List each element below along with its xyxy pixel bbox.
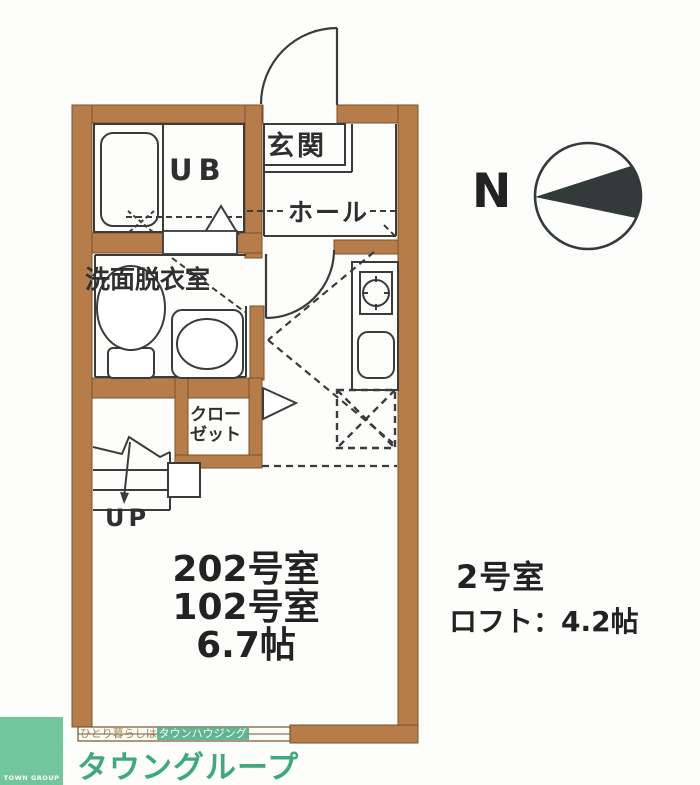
annotation-loft-size: ロフト：4.2帖 xyxy=(449,600,639,640)
tagline-plain: ひとり暮らしは xyxy=(80,727,157,740)
label-washroom: 洗面脱衣室 xyxy=(85,260,210,296)
wash-basin xyxy=(172,310,243,378)
annotation-room-number: 2号室 xyxy=(456,552,545,598)
hall-door xyxy=(266,250,334,318)
ub-door-triangle xyxy=(204,206,238,234)
label-entrance: 玄関 xyxy=(267,124,327,163)
label-closet-line2: ゼット xyxy=(190,420,241,445)
tagline-highlight: タウンハウジング xyxy=(157,727,249,740)
stove xyxy=(360,272,392,314)
wall-left xyxy=(72,105,92,727)
wall-washroom-right xyxy=(250,306,264,380)
wall-bottom xyxy=(290,725,418,743)
wall-hall-bottom xyxy=(334,240,398,254)
ub-step xyxy=(163,231,237,254)
compass-needle xyxy=(535,166,641,218)
kitchen-sink xyxy=(358,332,394,378)
refrigerator-space xyxy=(337,390,395,448)
label-stairs-up: UP xyxy=(105,504,150,532)
ub-door-mark xyxy=(128,211,154,233)
kitchen xyxy=(352,262,398,390)
compass-icon xyxy=(535,143,641,249)
wall-ub-bottom-right xyxy=(237,233,262,253)
entrance-door xyxy=(261,28,337,105)
brand-name: タウングループ xyxy=(77,742,299,785)
label-unit-bath: UB xyxy=(169,153,227,187)
brand-tagline: ひとり暮らしはタウンハウジング xyxy=(80,726,249,741)
label-hall: ホール xyxy=(288,193,369,229)
wall-ub-bottom-left xyxy=(92,233,163,253)
floor-plan-page: 玄関 UB ホール 洗面脱衣室 クロー ゼット UP 202号室 102号室 6… xyxy=(0,0,700,785)
logo-text: TOWN GROUP xyxy=(0,774,63,782)
closet-door-triangle xyxy=(263,388,296,419)
label-room-size: 6.7帖 xyxy=(96,616,396,668)
wall-top-left xyxy=(72,105,263,123)
town-group-logo: TOWN GROUP xyxy=(0,717,63,785)
compass-north-label: N xyxy=(472,164,511,219)
stairs-up-arrow xyxy=(120,442,130,504)
stair-landing xyxy=(168,463,200,497)
wall-right xyxy=(398,105,418,743)
loft-dashed-lines xyxy=(262,252,397,466)
